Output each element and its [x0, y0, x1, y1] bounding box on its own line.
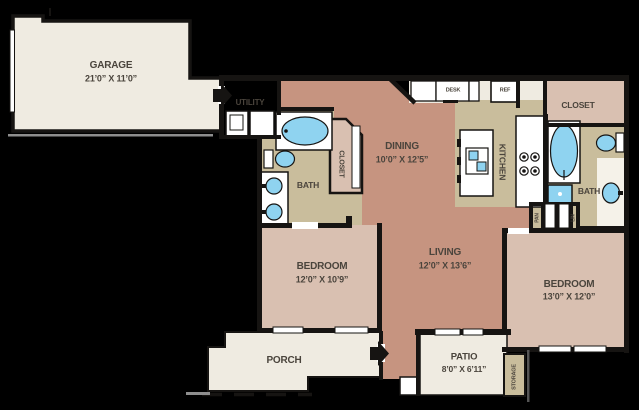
storage-label: STORAGE [512, 364, 518, 390]
bedroom-left-dims: 12’0” X 10’9” [296, 276, 348, 285]
entry-post [400, 377, 417, 395]
bathtub-faucet [284, 129, 288, 133]
garage-dims: 21’0” X 11’0” [85, 75, 137, 84]
sink-icon [603, 183, 620, 203]
sink-faucet [262, 184, 266, 188]
wall [555, 202, 559, 230]
bathtub-icon [282, 117, 328, 145]
wall [219, 135, 281, 139]
wall [416, 334, 420, 396]
kitchen-sink-basin [469, 151, 478, 160]
desk-label: DESK [446, 88, 460, 94]
dining-dims: 10’0” X 12’5” [376, 156, 428, 165]
bedroom-right-door-opening [508, 228, 529, 234]
sink-faucet [262, 210, 266, 214]
garage-window [10, 30, 15, 112]
bedroom-right-label: BEDROOM [544, 280, 595, 290]
utility-label: UTILITY [236, 99, 265, 107]
wall [502, 228, 507, 333]
sink-faucet [618, 191, 623, 195]
toilet-icon [276, 151, 295, 167]
counter [469, 81, 479, 101]
wall [624, 75, 629, 353]
window [435, 329, 460, 335]
kitchen-counter [516, 116, 544, 207]
wall [219, 104, 224, 137]
driveway-line [8, 134, 213, 137]
pantry-label: PAN [536, 213, 541, 223]
island-notch [457, 157, 461, 165]
floorplan-canvas: GARAGE 21’0” X 11’0” UTILITY DESK REF CL… [0, 0, 639, 410]
wall [516, 78, 520, 108]
wall [377, 223, 382, 333]
closet-right-label: CLOSET [561, 101, 594, 110]
kitchen-sink-basin [477, 162, 486, 171]
wall [541, 202, 545, 230]
pantry-door [545, 204, 555, 228]
bathtub-icon [551, 125, 578, 177]
bedroom-right-dims: 13’0” X 12’0” [543, 293, 595, 302]
wall [543, 78, 547, 118]
bath-right-label: BATH [578, 187, 600, 196]
wall [346, 216, 352, 228]
linen-door [559, 204, 569, 228]
wall [578, 226, 625, 230]
storage-side-line [527, 350, 530, 402]
counter [411, 81, 436, 101]
window [574, 346, 606, 352]
wall [277, 107, 334, 111]
window [273, 327, 303, 333]
living-dims: 12’0” X 13’6” [419, 262, 471, 271]
island-notch [457, 175, 461, 183]
bedroom-left-door-opening [292, 222, 318, 229]
sink-icon [266, 204, 282, 220]
bedroom-left-label: BEDROOM [297, 262, 348, 272]
toilet-icon [597, 135, 616, 151]
closet-left-label: CLOSET [338, 150, 345, 177]
patio-dims: 8’0” X 6’11” [442, 365, 486, 374]
sink-icon [266, 178, 282, 194]
linen-label: LIN [572, 214, 577, 221]
wall [257, 135, 262, 333]
wall [543, 114, 548, 203]
wall [379, 331, 383, 344]
garage-label: GARAGE [90, 61, 133, 71]
porch-railing-gray [186, 392, 210, 395]
patio-label: PATIO [451, 352, 478, 362]
wall [529, 203, 533, 232]
refrigerator-label: REF [500, 88, 510, 94]
bedroom-right-floor [505, 230, 626, 350]
bath-left-label: BATH [297, 181, 319, 190]
window [539, 346, 571, 352]
window [335, 327, 368, 333]
toilet-tank-right [616, 133, 624, 152]
wall [545, 123, 625, 127]
wall [258, 223, 292, 228]
toilet-tank-left [264, 150, 273, 168]
vanity-sink-dot [558, 192, 562, 196]
dryer-icon [250, 111, 274, 136]
living-label: LIVING [429, 248, 461, 258]
dining-label: DINING [385, 142, 419, 152]
island-notch [457, 139, 461, 147]
desk-notch [443, 100, 458, 103]
closet-left-door [352, 126, 360, 188]
wall [379, 362, 383, 380]
window [463, 329, 483, 335]
porch-label: PORCH [266, 356, 301, 366]
kitchen-label: KITCHEN [498, 144, 507, 180]
